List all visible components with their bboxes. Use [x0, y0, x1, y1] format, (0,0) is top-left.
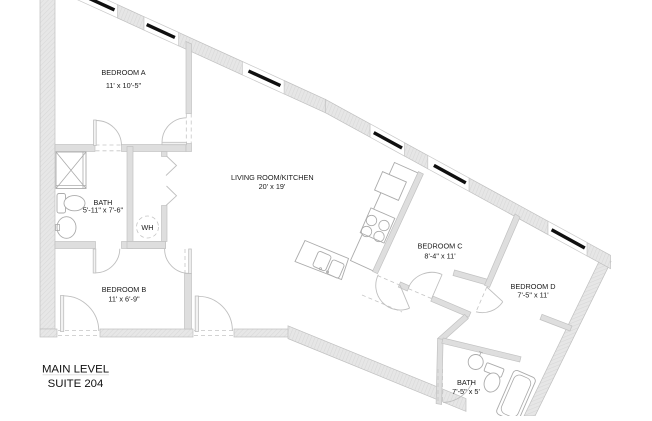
svg-text:20' x 19': 20' x 19' [259, 182, 286, 191]
svg-text:MAIN LEVEL: MAIN LEVEL [42, 364, 109, 376]
svg-text:WH: WH [141, 223, 153, 232]
svg-text:7'-5" x 5': 7'-5" x 5' [452, 387, 480, 396]
svg-text:BEDROOM C: BEDROOM C [418, 242, 463, 251]
svg-text:11' x 6'-9": 11' x 6'-9" [108, 295, 140, 304]
svg-text:8'-4" x 11': 8'-4" x 11' [424, 252, 456, 261]
svg-text:BATH: BATH [457, 378, 476, 387]
svg-text:BEDROOM A: BEDROOM A [101, 68, 145, 77]
svg-text:7'-5" x 11': 7'-5" x 11' [517, 291, 549, 300]
svg-text:SUITE 204: SUITE 204 [48, 378, 104, 390]
svg-text:11' x 10'-5": 11' x 10'-5" [106, 81, 142, 90]
svg-text:BEDROOM B: BEDROOM B [102, 285, 147, 294]
svg-text:5'-11" x 7'-6": 5'-11" x 7'-6" [83, 206, 124, 215]
svg-text:LIVING ROOM/KITCHEN: LIVING ROOM/KITCHEN [231, 173, 314, 182]
